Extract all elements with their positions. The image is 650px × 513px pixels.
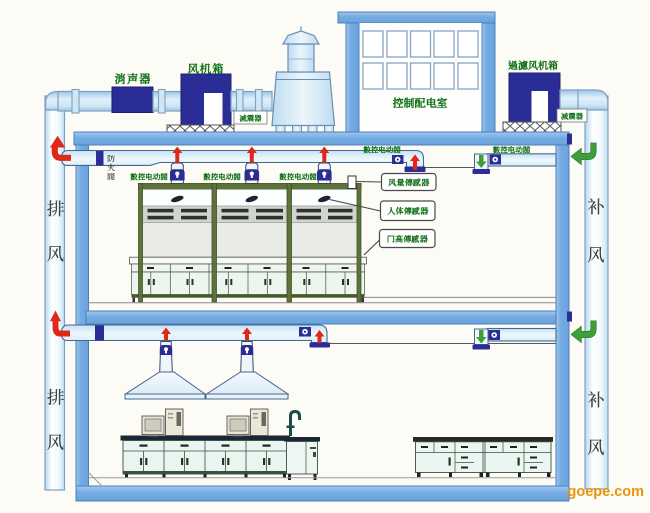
svg-text:风: 风 [587, 435, 605, 460]
svg-text:排: 排 [47, 196, 65, 221]
svg-text:风: 风 [47, 241, 65, 266]
svg-text:數控电动閥: 數控电动閥 [362, 145, 401, 156]
svg-text:控制配电室: 控制配电室 [393, 95, 448, 111]
svg-text:數控电动閥: 數控电动閥 [129, 172, 168, 183]
svg-text:减震器: 减震器 [239, 113, 262, 124]
svg-text:风: 风 [587, 242, 605, 267]
svg-text:风: 风 [47, 430, 65, 455]
svg-text:goepe.com: goepe.com [568, 484, 645, 500]
svg-text:排: 排 [47, 385, 65, 410]
svg-text:消声器: 消声器 [115, 71, 152, 87]
svg-text:數控电动閥: 數控电动閥 [492, 145, 531, 156]
svg-text:閥: 閥 [107, 172, 115, 183]
svg-text:人体傳感器: 人体傳感器 [386, 206, 428, 217]
svg-text:门高傳感器: 门高傳感器 [387, 234, 428, 245]
svg-text:风量傳感器: 风量傳感器 [387, 177, 429, 188]
svg-text:补: 补 [587, 194, 605, 219]
svg-text:數控电动閥: 數控电动閥 [278, 172, 317, 183]
svg-text:补: 补 [587, 387, 605, 412]
svg-text:减震器: 减震器 [561, 111, 584, 122]
svg-text:风机箱: 风机箱 [186, 61, 225, 77]
svg-text:過濾风机箱: 過濾风机箱 [507, 57, 558, 72]
svg-text:數控电动閥: 數控电动閥 [202, 172, 241, 183]
